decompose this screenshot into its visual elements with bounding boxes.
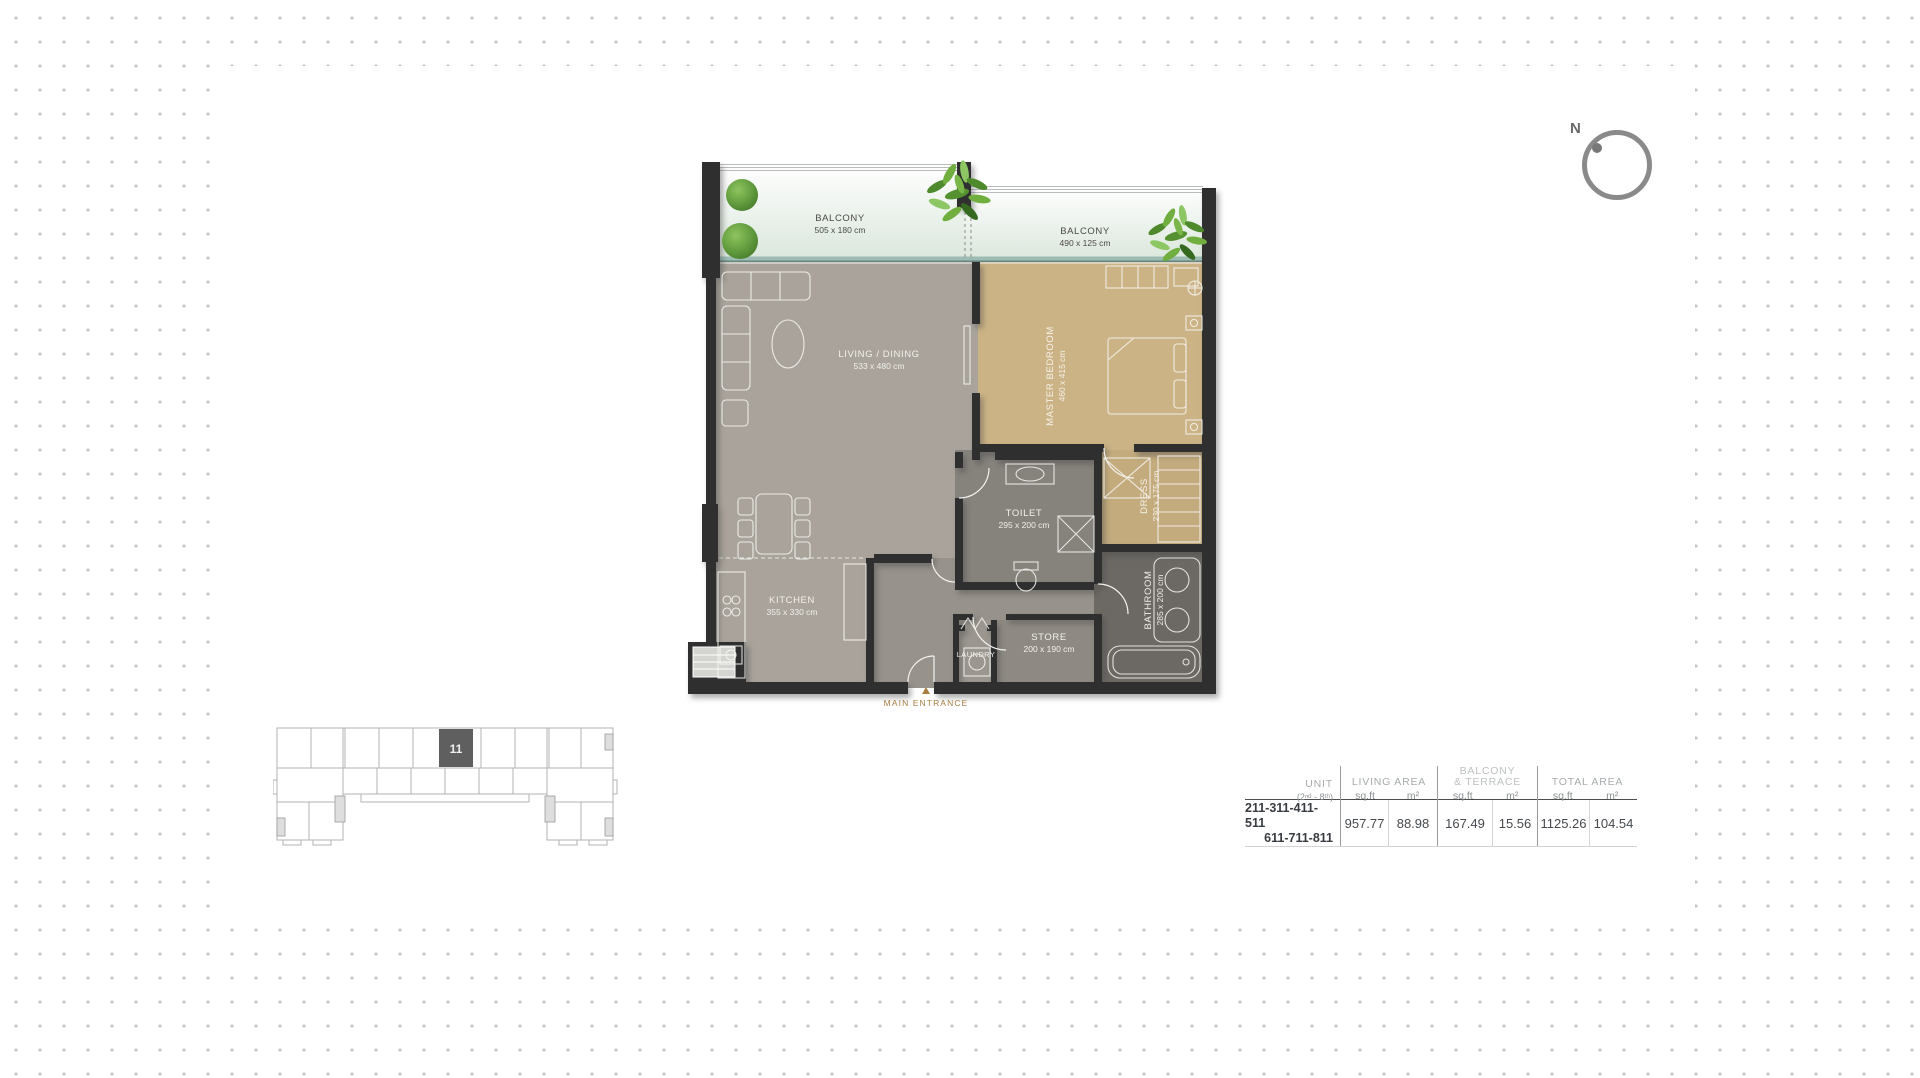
compass: N [1582,130,1652,200]
main-entrance-label: MAIN ENTRANCE [884,698,969,708]
store-label: STORE [1031,632,1067,643]
total-sqft-value: 1125.26 [1537,800,1589,846]
total-sqm-value: 104.54 [1589,800,1637,846]
toilet-label: TOILET [1006,508,1043,519]
kitchen-dims: 355 x 330 cm [766,607,817,617]
bathroom-dims: 285 x 200 cm [1155,574,1165,625]
balcony1-label: BALCONY [815,213,865,224]
bathroom-label: BATHROOM [1143,571,1154,630]
balcony2-dims: 490 x 125 cm [1059,238,1110,248]
total-area-header: TOTAL AREA [1538,777,1637,788]
toilet-dims: 295 x 200 cm [998,520,1049,530]
store-dims: 200 x 190 cm [1023,644,1074,654]
kitchen-label: KITCHEN [769,595,815,606]
dress-label: DRESS [1139,478,1150,514]
living-dims: 533 x 480 cm [853,361,904,371]
unit-numbers-line2: 611-711-811 [1264,831,1333,846]
balcony-sqft-value: 167.49 [1437,800,1492,846]
balcony-header-line2: & TERRACE [1438,777,1537,788]
balcony2-label: BALCONY [1060,226,1110,237]
dress-dims: 230 x 175 cm [1151,470,1161,521]
balcony-sqm-value: 15.56 [1492,800,1537,846]
compass-dot-icon [1592,143,1602,153]
entrance-arrow-icon [922,687,930,694]
unit-numbers-cell: 211-311-411-511 611-711-811 [1245,800,1340,846]
master-bedroom-dims: 460 x 415 cm [1057,350,1067,401]
living-sqft-value: 957.77 [1340,800,1388,846]
living-sqm-value: 88.98 [1388,800,1437,846]
area-table-row: 211-311-411-511 611-711-811 957.77 88.98… [1245,800,1637,847]
unit-header: UNIT [1245,778,1340,790]
page: { "compass": {"label": "N"}, "floor_plan… [0,0,1920,1078]
balcony1-dims: 505 x 180 cm [814,225,865,235]
master-bedroom-label: MASTER BEDROOM [1045,326,1056,426]
living-label: LIVING / DINING [838,349,919,360]
compass-north-label: N [1570,120,1581,137]
area-table: UNIT (2ⁿᵈ - 8ᵗʰ) LIVING AREA sq.ft m² BA… [1245,766,1637,847]
area-table-header: UNIT (2ⁿᵈ - 8ᵗʰ) LIVING AREA sq.ft m² BA… [1245,766,1637,800]
compass-ring-icon [1582,130,1652,200]
living-area-header: LIVING AREA [1341,777,1437,788]
floor-plan: BALCONY 505 x 180 cm BALCONY 490 x 125 c… [676,148,1241,713]
laundry-label: LAUNDRY [957,650,996,659]
unit-numbers-line1: 211-311-411-511 [1245,801,1333,831]
unit-number-label: 11 [450,742,463,756]
utility-vent [693,647,735,677]
key-plan: 11 [273,722,621,854]
